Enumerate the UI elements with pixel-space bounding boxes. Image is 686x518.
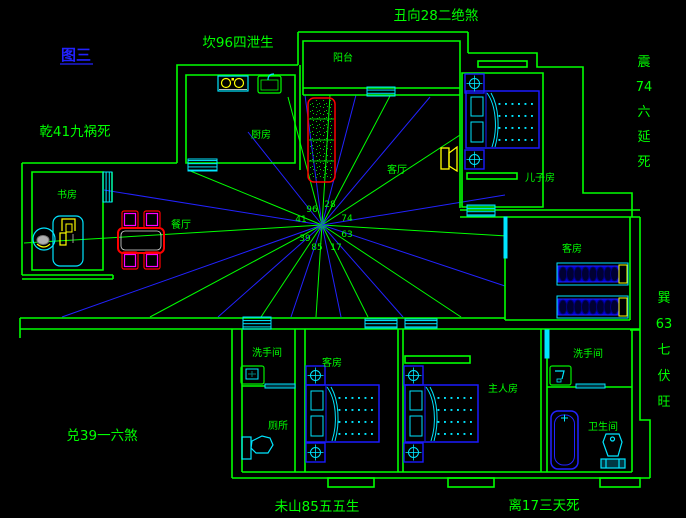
single-bed (557, 296, 628, 318)
door-washroom-left (265, 384, 295, 388)
room-label-toilet: 厕所 (268, 420, 288, 432)
window-corridor (243, 317, 271, 329)
room-label-son-room: 儿子房 (525, 171, 555, 184)
fengshui-label-kan: 坎96四泄生 (202, 35, 273, 51)
compass-number: 96 (306, 205, 318, 215)
compass-number: 28 (324, 200, 336, 210)
room-label-kitchen: 厨房 (251, 128, 271, 141)
fengshui-label-li: 离17三天死 (508, 497, 579, 514)
window-washroom-right (545, 330, 549, 358)
room-label-master: 主人房 (488, 382, 518, 395)
window-balcony (367, 87, 395, 96)
room-label-guest-right: 客房 (562, 242, 582, 255)
compass-number: 39 (299, 234, 311, 244)
room-label-washroom-left: 洗手间 (252, 346, 282, 359)
window-study (103, 172, 112, 202)
sofa (308, 98, 335, 182)
cad-floor-plan: 9628417439638517 图三 丑向28二绝煞 坎96四泄生 乾41九祸… (0, 0, 686, 518)
floor-plan-canvas: 9628417439638517 图三 丑向28二绝煞 坎96四泄生 乾41九祸… (0, 0, 686, 518)
window-guest-right (504, 217, 507, 258)
window-kitchen (188, 159, 217, 171)
fengshui-label-top: 丑向28二绝煞 (394, 8, 479, 24)
door-master (405, 319, 437, 328)
room-label-bathroom: 卫生间 (588, 420, 618, 433)
room-label-washroom-right: 洗手间 (573, 347, 603, 360)
compass-number: 41 (295, 215, 306, 225)
compass-number: 74 (341, 214, 353, 224)
drawing-title: 图三 (61, 46, 91, 64)
room-label-guest-bottom: 客房 (322, 356, 342, 369)
compass-number: 85 (311, 243, 322, 253)
room-label-study: 书房 (57, 188, 77, 201)
room-label-dining: 餐厅 (171, 218, 191, 231)
room-label-balcony: 阳台 (333, 51, 353, 64)
room-label-living: 客厅 (387, 163, 407, 176)
compass-number: 63 (341, 230, 352, 240)
compass-number: 17 (330, 243, 341, 253)
fengshui-label-dui: 兑39一六煞 (66, 428, 138, 444)
window-son-room (467, 205, 495, 216)
door-washroom-right (576, 384, 605, 388)
fengshui-label-wei: 未山85五五生 (275, 499, 360, 515)
fengshui-label-qian: 乾41九祸死 (39, 124, 110, 140)
single-bed (557, 263, 628, 285)
door-guest-bottom (365, 319, 397, 328)
